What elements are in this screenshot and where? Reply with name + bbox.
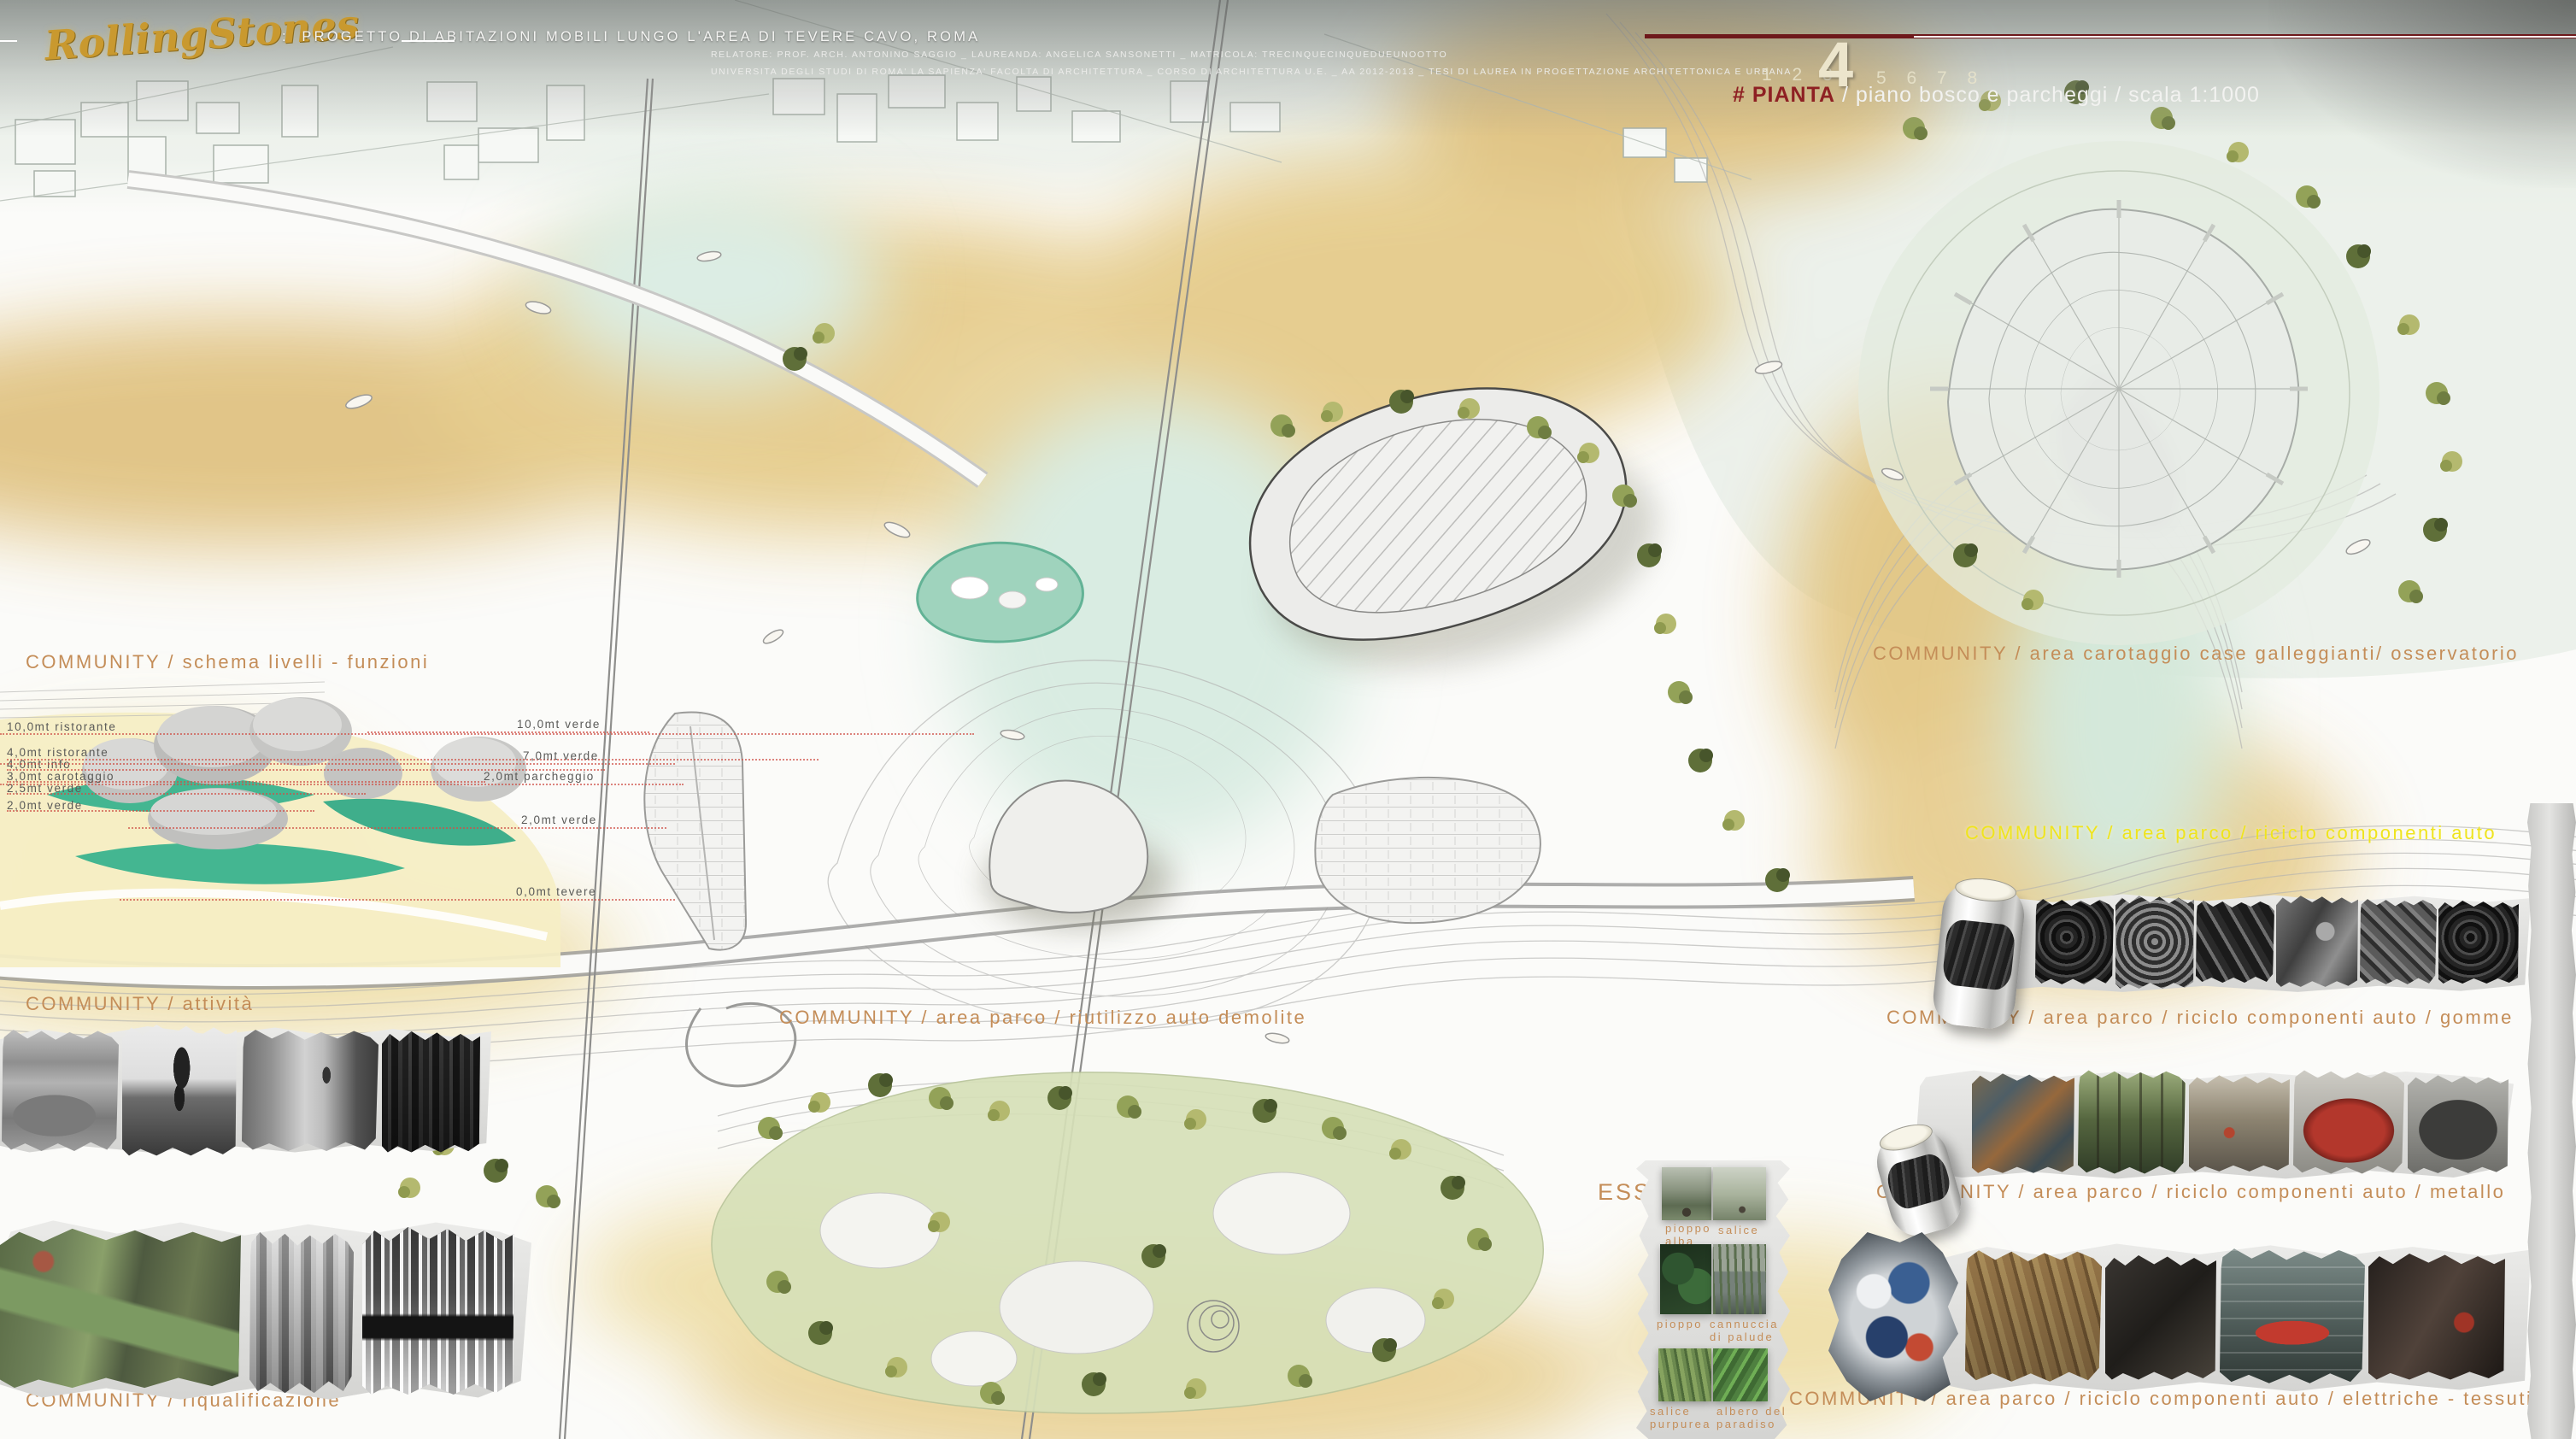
photo-forest	[249, 1229, 354, 1396]
photo-cannuccia	[1713, 1244, 1766, 1314]
photo-cyclists	[242, 1027, 378, 1154]
header-rule-mid	[402, 40, 455, 42]
top-right-shadow	[2268, 0, 2576, 188]
level-label: 2,0mt parcheggio	[484, 770, 595, 783]
photo-scrap-metal	[1972, 1072, 2074, 1174]
header-rule-left	[0, 40, 17, 42]
plant-label: salice	[1718, 1224, 1759, 1236]
photo-structures-trees	[2078, 1068, 2186, 1176]
photo-fountains	[362, 1224, 514, 1396]
level-label: 3,0mt carotaggio	[7, 770, 114, 783]
photo-skatepark	[2, 1027, 119, 1154]
photo-timber-structure	[1965, 1248, 2102, 1384]
project-title: : PROGETTO DI ABITAZIONI MOBILI LUNGO L'…	[282, 29, 980, 45]
photo-tires-pile	[2438, 899, 2519, 984]
photo-dark-workshop	[2105, 1253, 2216, 1381]
photo-aerial-river	[0, 1225, 241, 1389]
plant-label: pioppo	[1657, 1318, 1703, 1330]
credits-line-1: RELATORE: PROF. ARCH. ANTONINO SAGGIO _ …	[711, 50, 1447, 60]
photo-salice	[1713, 1167, 1766, 1220]
leader-line	[7, 759, 819, 761]
strip-gomme	[1922, 884, 2533, 1033]
strip-essenze: pioppo alba salice pioppo cannuccia di p…	[1628, 1160, 1799, 1439]
rolled-poster-photo	[1941, 919, 2016, 990]
photo-tire-tread	[2196, 899, 2274, 984]
level-label: 2,0mt verde	[521, 813, 597, 826]
photo-pioppo	[1660, 1244, 1711, 1314]
leader-line	[128, 827, 666, 829]
sheet-title-prefix: # PIANTA	[1733, 83, 1835, 107]
header-rule-white	[1914, 36, 2576, 38]
level-label: 10,0mt verde	[517, 718, 601, 731]
photo-albero-paradiso	[1713, 1348, 1768, 1401]
level-label: 7,0mt verde	[523, 749, 599, 762]
pond	[918, 543, 1083, 642]
photo-chassis-textile	[2220, 1246, 2365, 1386]
leader-line	[0, 763, 675, 765]
strip-elettriche	[1828, 1227, 2533, 1411]
strip-attivita	[0, 1019, 491, 1162]
sheet-title: # PIANTA / piano bosco e parcheggi / sca…	[1733, 83, 2260, 108]
strip-riqualificazione	[0, 1210, 538, 1411]
observatory-dome	[1858, 141, 2379, 645]
leader-line	[367, 731, 649, 733]
rolled-poster-top	[1877, 1119, 1936, 1156]
photo-tubes	[2115, 894, 2194, 990]
right-edge-paper	[2527, 803, 2576, 1439]
label-riutilizzo: COMMUNITY / area parco / riutilizzo auto…	[779, 1007, 1306, 1029]
crumpled-photo-roll	[1828, 1232, 1958, 1401]
plant-label: cannuccia di palude	[1710, 1318, 1795, 1343]
level-label: 4,0mt ristorante	[7, 746, 109, 759]
photo-jogger	[122, 1022, 237, 1157]
leader-line	[0, 733, 974, 735]
level-label: 2,0mt verde	[7, 799, 83, 812]
label-attivita: COMMUNITY / attività	[26, 993, 254, 1015]
label-riciclo: COMMUNITY / area parco / riciclo compone…	[1965, 822, 2497, 844]
plant-label: albero del paradiso	[1716, 1405, 1805, 1430]
photo-dark-dome	[2408, 1073, 2509, 1174]
photo-red-dome-tent	[2293, 1068, 2404, 1176]
leader-line	[0, 784, 684, 785]
sheet-title-rest: / piano bosco e parcheggi / scala 1:1000	[1842, 83, 2260, 107]
photo-dark-interior	[2368, 1251, 2505, 1381]
strip-metallo	[1880, 1060, 2531, 1201]
level-label: 0,0mt tevere	[516, 885, 596, 898]
photo-car-parts	[2276, 894, 2358, 988]
presentation-board: RollingStones : PROGETTO DI ABITAZIONI M…	[0, 0, 2576, 1439]
photo-tire-stack	[2035, 897, 2114, 986]
label-carotaggio: COMMUNITY / area carotaggio case gallegg…	[1873, 643, 2519, 665]
photo-pioppo-alba	[1662, 1167, 1711, 1220]
leader-line	[120, 899, 675, 901]
credits-line-2: UNIVERSITA DEGLI STUDI DI ROMA' LA SAPIE…	[711, 67, 1792, 77]
rolled-poster	[1931, 881, 2027, 1031]
photo-scrapyard	[2360, 897, 2437, 986]
label-schema-livelli: COMMUNITY / schema livelli - funzioni	[26, 651, 429, 673]
photo-salice-purpurea	[1658, 1348, 1711, 1401]
plant-label: salice purpurea	[1650, 1405, 1718, 1430]
rolled-poster-photo	[1883, 1151, 1954, 1213]
level-label: 10,0mt ristorante	[7, 720, 117, 733]
photo-workers	[2189, 1073, 2290, 1172]
photo-woodland	[382, 1029, 480, 1154]
